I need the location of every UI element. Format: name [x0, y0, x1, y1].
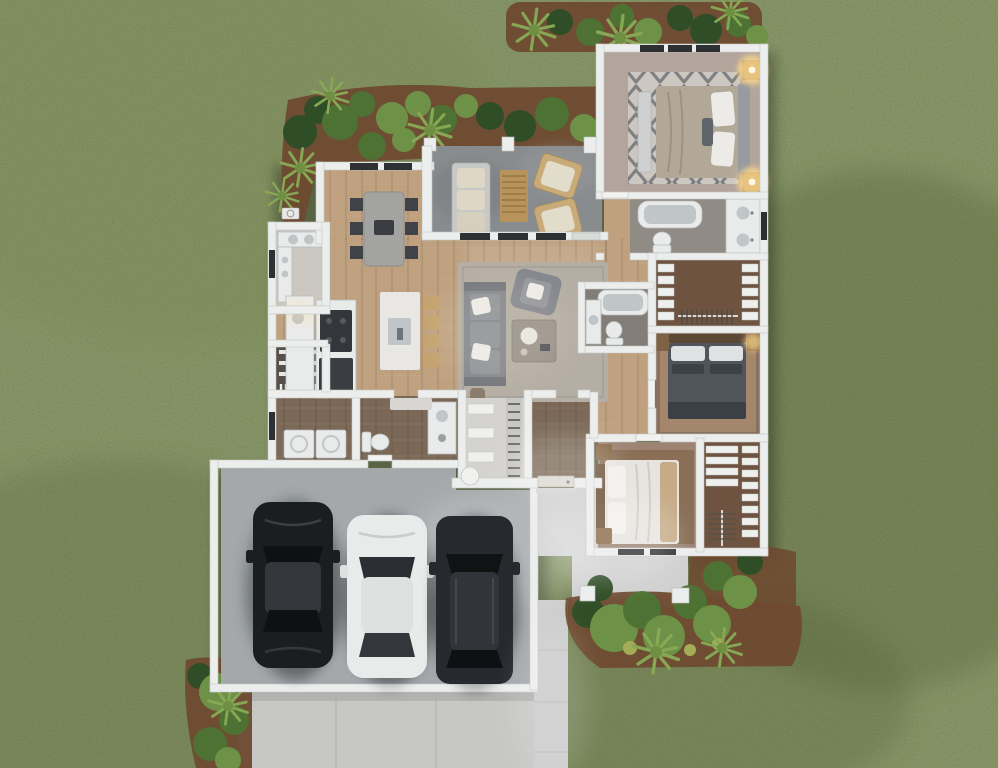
- lamp: [749, 67, 756, 74]
- driveway-wall-shade: [238, 692, 534, 701]
- pillow: [711, 91, 736, 127]
- window: [269, 412, 275, 440]
- lamp-glow: [744, 333, 762, 351]
- bedroom-2: [656, 333, 762, 432]
- garage-door: [368, 455, 392, 461]
- porch-post: [580, 586, 595, 601]
- toilet-tank: [362, 432, 371, 452]
- bedroom2-door: [648, 380, 655, 408]
- black-sedan: [246, 502, 342, 680]
- rear-window: [263, 610, 323, 632]
- water-heater: [461, 467, 479, 485]
- driveway: [238, 692, 534, 768]
- foot-blanket: [668, 402, 746, 419]
- window: [269, 250, 275, 278]
- mud-bench: [390, 398, 432, 410]
- floor-plan-canvas: [0, 0, 998, 768]
- porch-post: [672, 588, 689, 603]
- island-faucet: [397, 328, 403, 340]
- bed-bench: [638, 92, 651, 172]
- accent-pillow: [710, 364, 742, 374]
- window: [696, 45, 720, 52]
- side-mirror: [246, 550, 254, 563]
- window: [498, 233, 528, 240]
- lamp: [749, 179, 756, 186]
- pillow: [709, 346, 743, 361]
- window: [668, 45, 692, 52]
- toilet-bowl: [606, 322, 622, 339]
- car-roof: [265, 562, 321, 614]
- vanity-sink: [737, 234, 750, 247]
- window: [460, 233, 490, 240]
- toilet-tank: [606, 338, 623, 345]
- car-roof: [450, 572, 499, 650]
- tub-interior: [603, 294, 643, 311]
- outdoor-sofa: [452, 163, 490, 237]
- window: [536, 233, 566, 240]
- outdoor-coffee-table: [500, 170, 528, 222]
- porch-haze: [542, 496, 682, 584]
- bedroom2-headboard: [668, 334, 746, 343]
- table-centerpiece: [374, 220, 394, 235]
- side-mirror: [512, 562, 520, 575]
- powder-vanity: [428, 402, 456, 454]
- dining-set: [350, 192, 418, 266]
- pillow: [711, 131, 736, 167]
- ac-unit: [282, 208, 299, 219]
- master-bedroom: [628, 55, 767, 197]
- master-headboard: [738, 84, 750, 180]
- vanity-sink: [737, 207, 750, 220]
- dryer: [316, 430, 346, 458]
- pillow: [671, 346, 705, 361]
- powder-sink: [436, 410, 448, 422]
- floor-plan-render: [0, 0, 998, 768]
- washer: [284, 430, 314, 458]
- bedroom3-door: [636, 434, 662, 441]
- master-door: [602, 192, 628, 198]
- rear-window: [446, 650, 503, 668]
- white-hatchback: [340, 515, 435, 688]
- side-mirror: [429, 562, 437, 575]
- tub-interior: [644, 205, 696, 224]
- window: [640, 45, 664, 52]
- rear-window: [359, 633, 415, 657]
- accent-pillow: [672, 364, 704, 374]
- patio-slider-door: [572, 233, 600, 240]
- vanity-sink: [589, 315, 599, 325]
- nightstand: [656, 334, 669, 351]
- window: [761, 212, 767, 240]
- interior-warm-glow: [430, 280, 570, 380]
- entry-haze: [510, 434, 620, 502]
- side-mirror: [340, 565, 348, 578]
- toilet-tank: [653, 245, 671, 253]
- charcoal-suv: [429, 516, 520, 692]
- side-mirror: [332, 550, 340, 563]
- accent-pillow: [702, 118, 713, 146]
- car-roof: [361, 577, 413, 633]
- entry-closet-shelves: [468, 404, 494, 462]
- window: [350, 163, 378, 170]
- toilet-bowl: [371, 434, 389, 450]
- window: [384, 163, 412, 170]
